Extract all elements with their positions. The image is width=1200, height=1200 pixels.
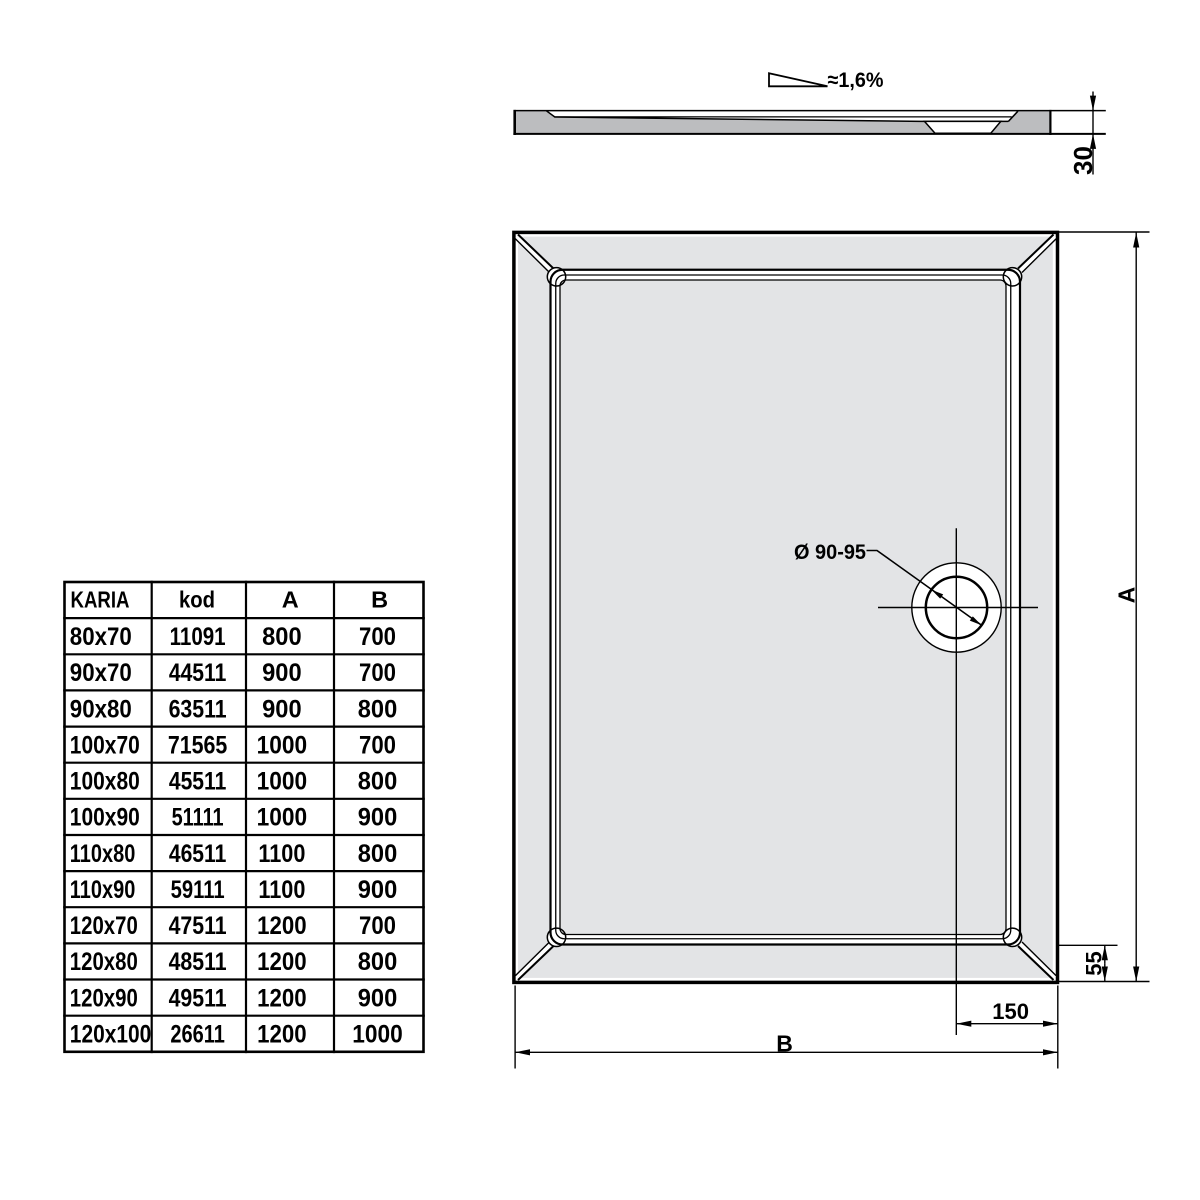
svg-text:B: B (371, 587, 388, 613)
svg-text:700: 700 (359, 623, 396, 651)
svg-text:71565: 71565 (168, 731, 228, 759)
svg-text:63511: 63511 (169, 695, 227, 723)
svg-text:1100: 1100 (258, 840, 305, 868)
svg-text:700: 700 (359, 659, 396, 687)
svg-text:900: 900 (262, 659, 302, 687)
svg-text:1000: 1000 (352, 1021, 403, 1049)
svg-text:90x70: 90x70 (70, 659, 132, 687)
svg-text:120x80: 120x80 (70, 948, 138, 976)
svg-text:47511: 47511 (169, 912, 227, 940)
svg-text:150: 150 (992, 999, 1029, 1024)
svg-text:1000: 1000 (257, 731, 308, 759)
svg-text:B: B (776, 1031, 793, 1057)
svg-text:KARIA: KARIA (71, 587, 130, 613)
svg-text:48511: 48511 (169, 948, 227, 976)
svg-text:800: 800 (358, 768, 398, 796)
svg-text:1200: 1200 (257, 984, 307, 1012)
svg-text:120x100: 120x100 (70, 1021, 152, 1049)
svg-text:800: 800 (358, 840, 398, 868)
svg-text:800: 800 (358, 948, 398, 976)
svg-text:kod: kod (179, 587, 215, 613)
svg-text:46511: 46511 (169, 840, 227, 868)
svg-text:51111: 51111 (172, 804, 224, 832)
svg-text:11091: 11091 (170, 623, 226, 651)
svg-text:59111: 59111 (171, 876, 225, 904)
svg-text:700: 700 (359, 731, 396, 759)
svg-text:110x80: 110x80 (70, 840, 136, 868)
svg-text:100x70: 100x70 (70, 731, 140, 759)
svg-text:A: A (1114, 587, 1140, 604)
svg-text:120x90: 120x90 (70, 984, 138, 1012)
svg-text:900: 900 (262, 695, 302, 723)
svg-text:800: 800 (358, 695, 398, 723)
svg-text:44511: 44511 (169, 659, 227, 687)
svg-text:1200: 1200 (257, 912, 307, 940)
svg-text:120x70: 120x70 (70, 912, 138, 940)
svg-text:900: 900 (358, 876, 398, 904)
svg-text:45511: 45511 (169, 768, 227, 796)
svg-text:≈1,6%: ≈1,6% (828, 68, 884, 92)
svg-text:55: 55 (1081, 951, 1106, 975)
svg-text:80x70: 80x70 (70, 623, 132, 651)
svg-text:1200: 1200 (257, 1021, 307, 1049)
svg-text:26611: 26611 (170, 1021, 225, 1049)
svg-text:1000: 1000 (257, 804, 308, 832)
svg-text:900: 900 (358, 984, 398, 1012)
svg-text:100x80: 100x80 (70, 768, 140, 796)
svg-text:30: 30 (1068, 146, 1098, 175)
svg-text:700: 700 (359, 912, 396, 940)
svg-text:100x90: 100x90 (70, 804, 140, 832)
svg-text:900: 900 (358, 804, 398, 832)
svg-text:800: 800 (262, 623, 302, 651)
svg-text:Ø 90-95: Ø 90-95 (794, 540, 866, 564)
svg-text:1200: 1200 (257, 948, 307, 976)
svg-text:A: A (282, 587, 299, 613)
svg-text:90x80: 90x80 (70, 695, 132, 723)
svg-text:1000: 1000 (257, 768, 308, 796)
svg-text:110x90: 110x90 (70, 876, 136, 904)
svg-text:1100: 1100 (258, 876, 305, 904)
svg-text:49511: 49511 (169, 984, 227, 1012)
